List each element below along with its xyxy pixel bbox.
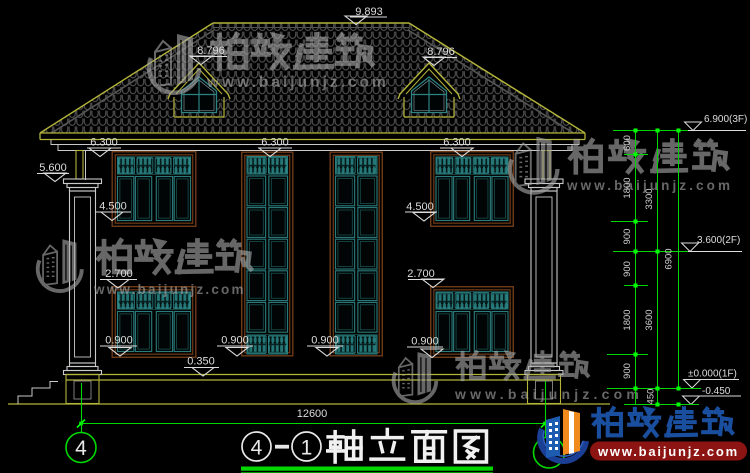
svg-text:600: 600 <box>622 135 633 151</box>
svg-text:900: 900 <box>622 261 633 277</box>
svg-text:3600: 3600 <box>644 309 655 330</box>
svg-text:www.baijunjz.com: www.baijunjz.com <box>206 74 389 91</box>
svg-text:www.baijunjz.com: www.baijunjz.com <box>93 282 246 297</box>
svg-text:4: 4 <box>251 437 263 460</box>
svg-text:1: 1 <box>301 437 313 460</box>
svg-text:6900: 6900 <box>664 248 675 269</box>
svg-text:450: 450 <box>646 389 657 405</box>
svg-text:3300: 3300 <box>644 188 655 209</box>
svg-text:1800: 1800 <box>622 309 633 330</box>
svg-text:-0.450: -0.450 <box>702 386 731 397</box>
svg-text:0.900: 0.900 <box>411 336 439 348</box>
svg-text:www.baijunjz.com: www.baijunjz.com <box>597 444 739 459</box>
svg-text:8.796: 8.796 <box>427 46 455 58</box>
svg-text:0.350: 0.350 <box>187 356 215 368</box>
svg-text:2.700: 2.700 <box>105 268 133 280</box>
svg-text:0.900: 0.900 <box>105 335 133 347</box>
svg-text:12600: 12600 <box>297 408 328 420</box>
svg-text:6.300: 6.300 <box>90 137 118 149</box>
svg-text:±0.000(1F): ±0.000(1F) <box>688 369 737 380</box>
svg-text:4.500: 4.500 <box>406 201 434 213</box>
svg-text:0.900: 0.900 <box>221 335 249 347</box>
svg-text:4: 4 <box>75 437 87 460</box>
svg-text:8.796: 8.796 <box>197 45 225 57</box>
svg-text:1800: 1800 <box>622 177 633 198</box>
svg-text:900: 900 <box>622 229 633 245</box>
svg-text:4.500: 4.500 <box>99 201 127 213</box>
svg-text:900: 900 <box>622 363 633 379</box>
svg-text:5.600: 5.600 <box>39 162 67 174</box>
svg-text:0.900: 0.900 <box>311 335 339 347</box>
svg-text:3.600(2F): 3.600(2F) <box>697 235 740 246</box>
svg-text:6.300: 6.300 <box>443 137 471 149</box>
svg-text:6.300: 6.300 <box>261 137 289 149</box>
svg-text:6.900(3F): 6.900(3F) <box>704 114 747 125</box>
svg-text:2.700: 2.700 <box>407 268 435 280</box>
